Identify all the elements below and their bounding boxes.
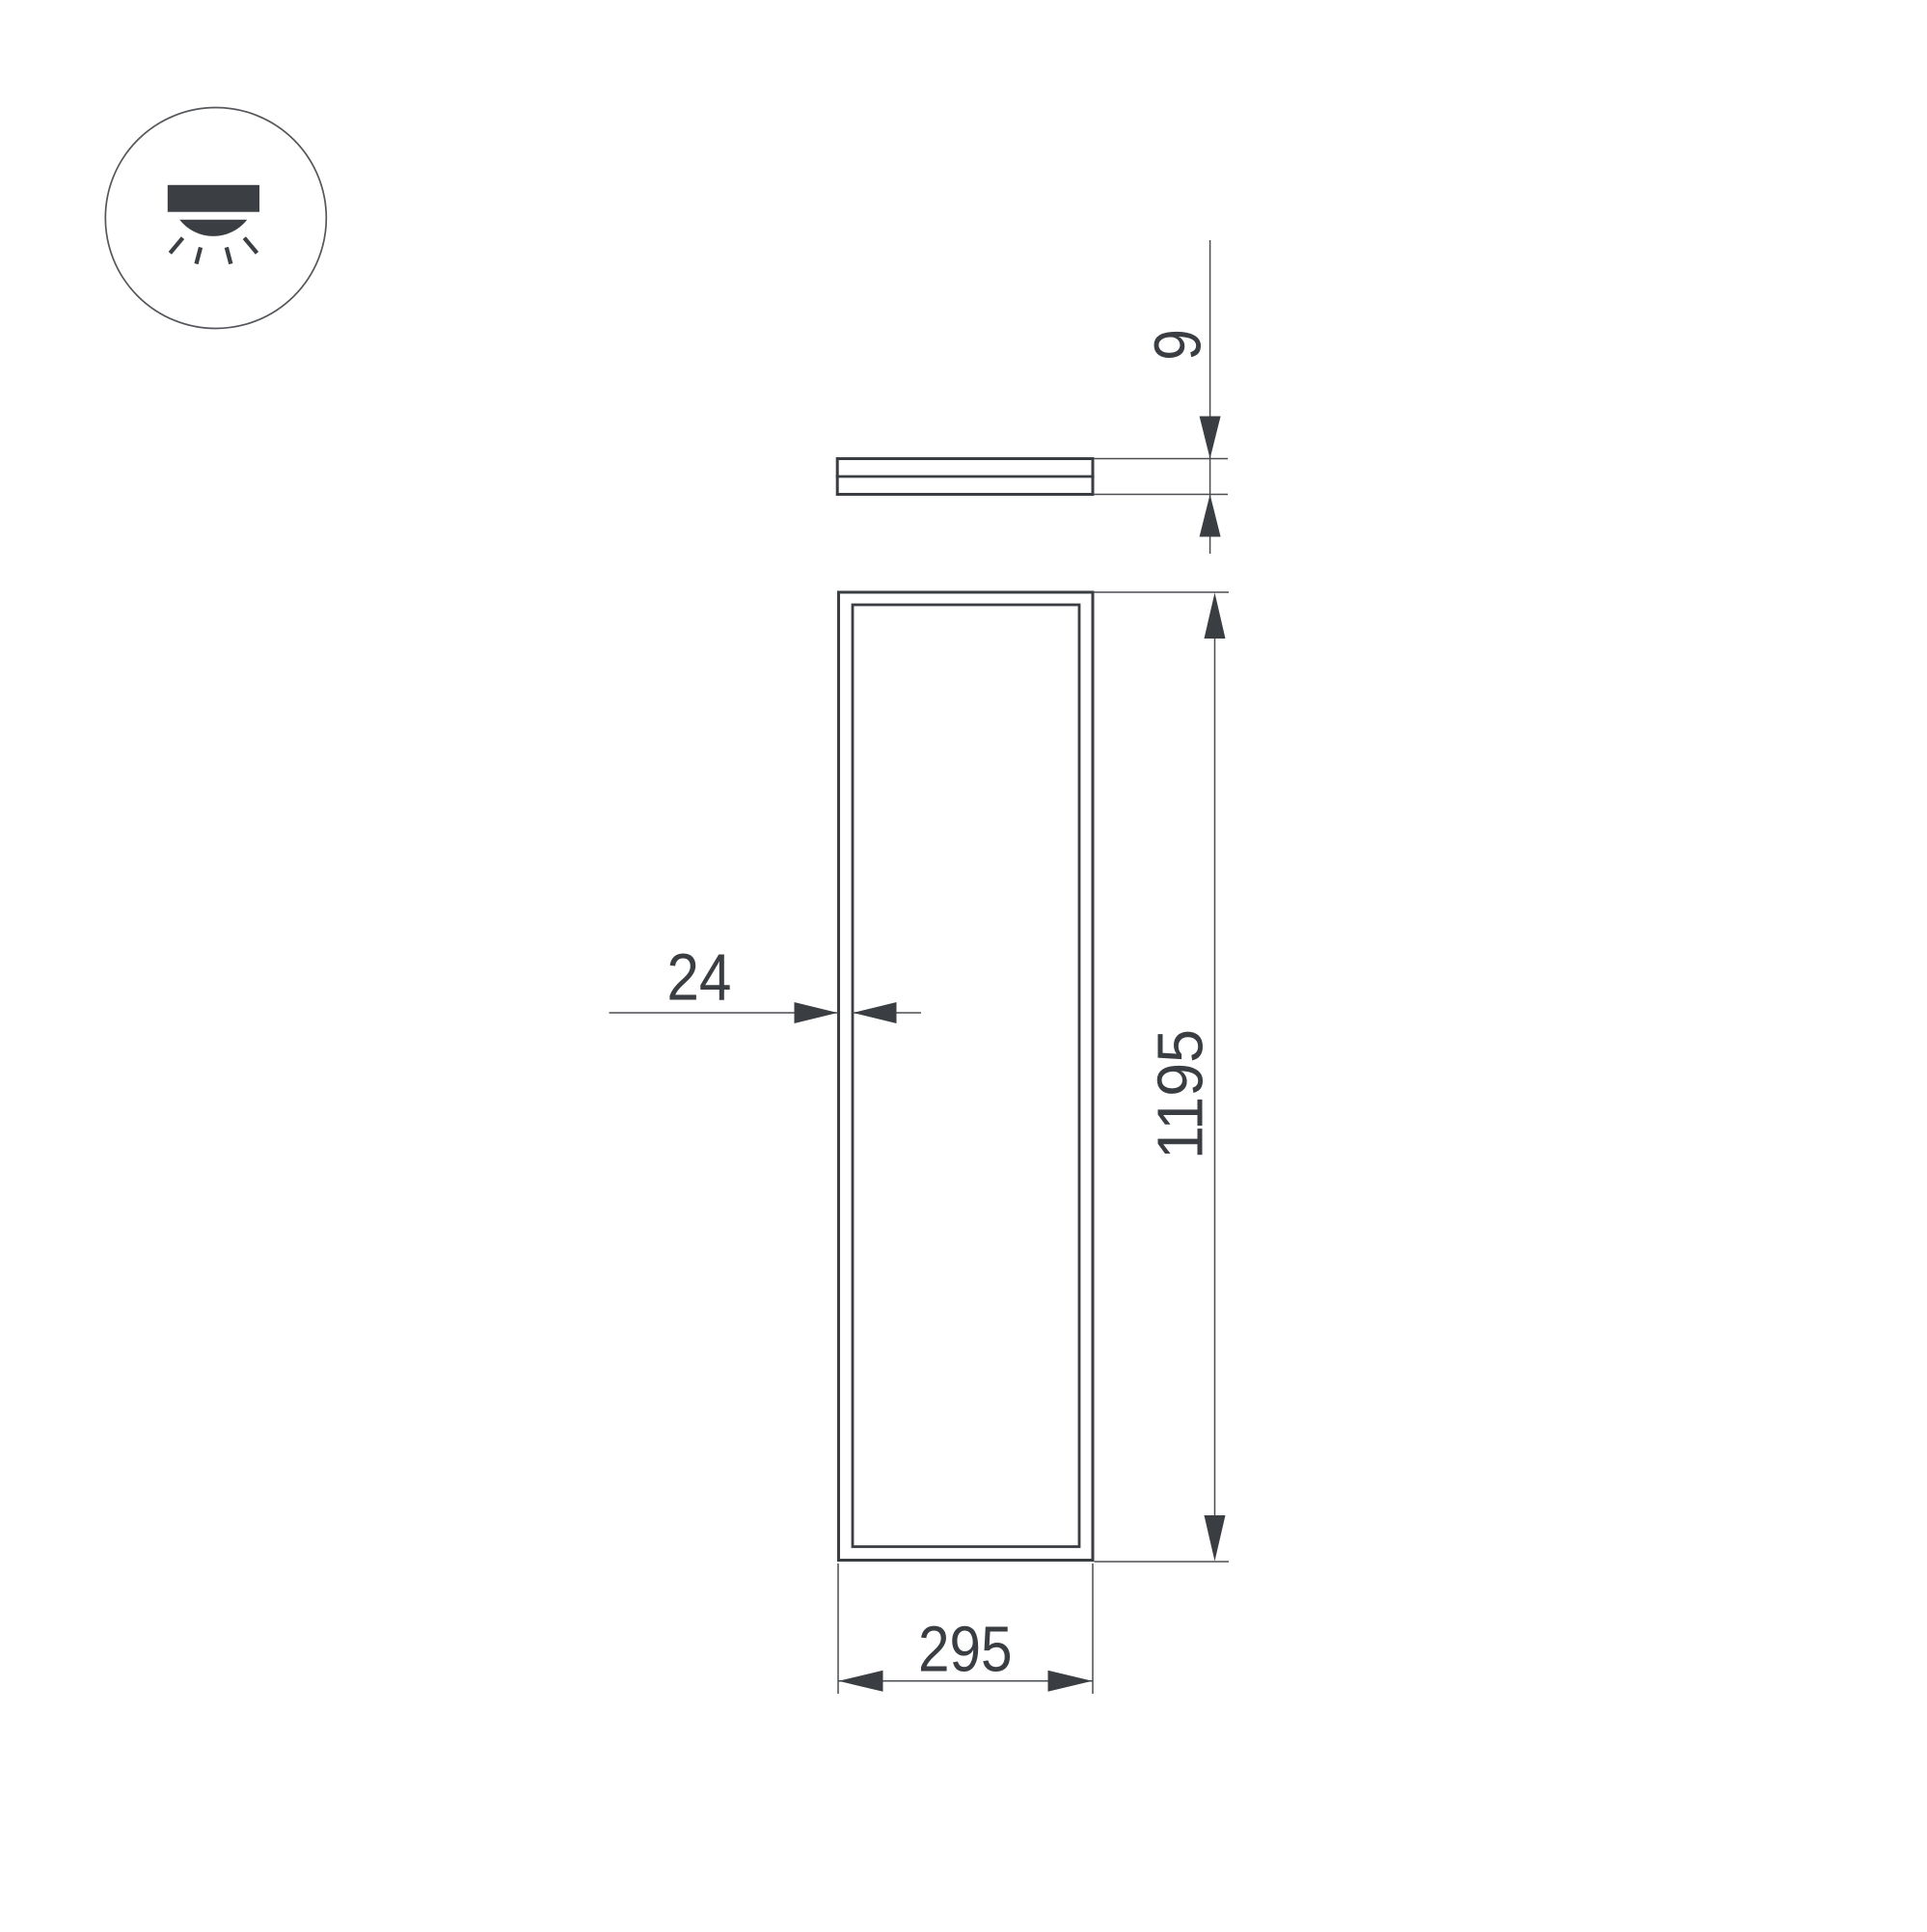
svg-text:1195: 1195 (1144, 1029, 1216, 1159)
svg-text:295: 295 (918, 1614, 1013, 1685)
svg-text:9: 9 (1140, 329, 1215, 361)
svg-text:24: 24 (666, 939, 731, 1015)
